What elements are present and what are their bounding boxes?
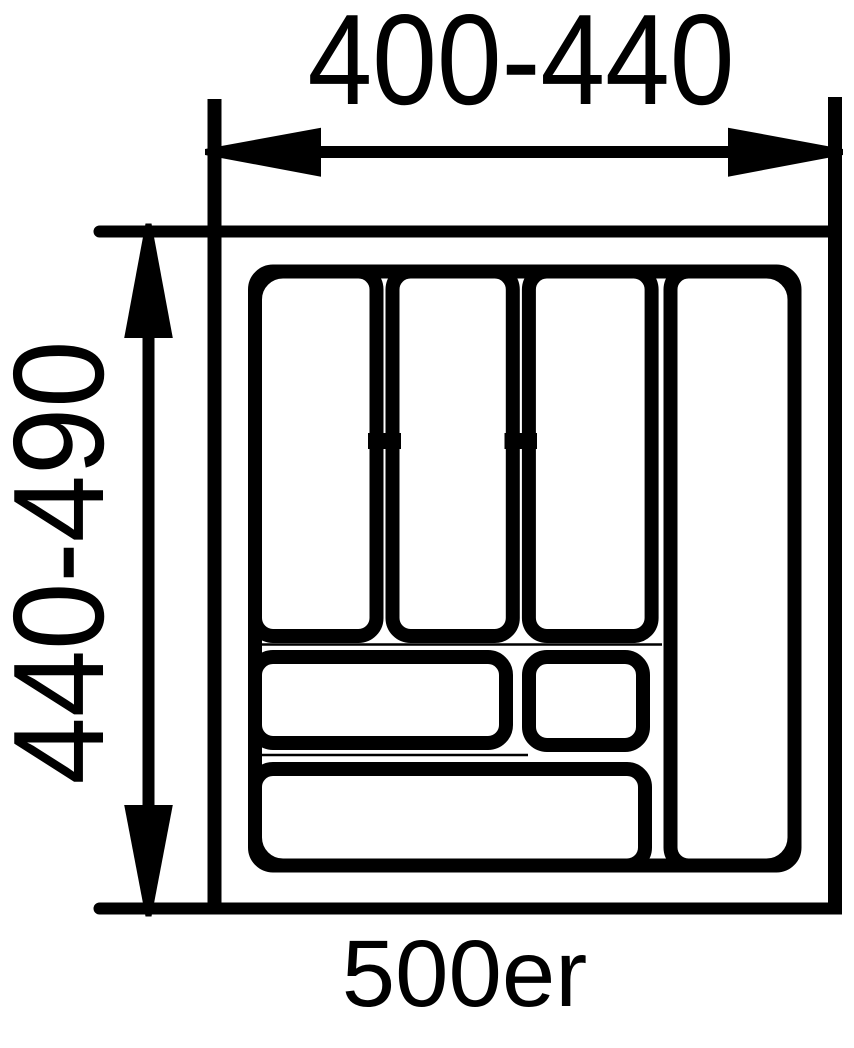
svg-text:500er: 500er <box>342 921 587 1026</box>
svg-text:440-490: 440-490 <box>0 340 131 784</box>
svg-text:400-440: 400-440 <box>308 0 735 132</box>
